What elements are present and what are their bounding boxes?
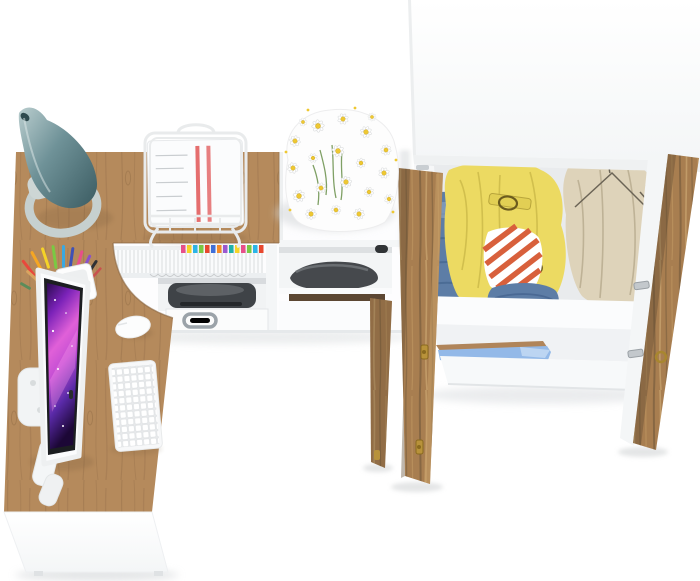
bud xyxy=(289,209,292,212)
hinge-knob xyxy=(417,445,421,449)
file-tab xyxy=(181,245,186,253)
hinge-knob xyxy=(422,350,426,354)
star xyxy=(62,425,64,427)
wardrobe-base xyxy=(424,296,660,390)
left-door-shadow xyxy=(391,482,443,492)
furniture-render xyxy=(0,0,700,581)
file-tab xyxy=(223,245,228,253)
desk-front-panel xyxy=(4,512,168,572)
file-tab xyxy=(211,245,216,253)
file-tab xyxy=(247,245,252,253)
shoe-compartment-shade xyxy=(279,247,392,253)
text-line xyxy=(156,210,186,211)
file-tab xyxy=(241,245,246,253)
handle-notch xyxy=(375,245,388,253)
pen xyxy=(62,245,65,268)
right-door-shadow xyxy=(618,447,668,457)
star xyxy=(67,392,69,394)
cabinet-front-edge xyxy=(279,240,408,247)
text-line xyxy=(156,182,188,183)
scene-canvas xyxy=(0,0,700,581)
file-tab xyxy=(193,245,198,253)
star xyxy=(54,405,56,407)
file-row xyxy=(112,245,264,277)
star xyxy=(54,299,56,301)
bud xyxy=(354,107,357,110)
tray-cast-shadow xyxy=(144,232,248,244)
bud xyxy=(307,109,310,112)
panel-door-shadow xyxy=(363,464,393,472)
printer-compartment xyxy=(158,278,266,311)
desk-foot xyxy=(34,571,43,576)
printer-top xyxy=(176,284,244,296)
file-tab xyxy=(229,245,234,253)
file-tab xyxy=(259,245,264,253)
file-tab xyxy=(253,245,258,253)
star xyxy=(71,345,73,347)
text-line xyxy=(156,155,188,156)
foot-hole xyxy=(30,380,36,386)
silver-hinge xyxy=(628,349,644,358)
file-tab xyxy=(205,245,210,253)
silver-hinge xyxy=(416,165,429,170)
desk-foot xyxy=(154,571,163,576)
bud xyxy=(285,151,288,154)
keyboard xyxy=(108,360,162,452)
silver-hinge xyxy=(634,281,650,290)
bezel-slot xyxy=(69,390,73,399)
drawer xyxy=(166,309,268,331)
file-tab xyxy=(217,245,222,253)
shoe-shelf-board xyxy=(279,288,392,294)
keyboard-keys xyxy=(112,364,160,447)
wardrobe-top xyxy=(408,0,700,172)
printer-tray xyxy=(180,302,242,306)
bud xyxy=(395,159,398,162)
file-tab xyxy=(187,245,192,253)
star xyxy=(65,312,67,314)
brass-hinge xyxy=(374,450,380,460)
bud xyxy=(392,211,395,214)
star xyxy=(57,368,59,370)
top-panel xyxy=(408,0,700,161)
file-tab xyxy=(199,245,204,253)
star xyxy=(52,330,54,332)
handle-core xyxy=(190,318,210,323)
